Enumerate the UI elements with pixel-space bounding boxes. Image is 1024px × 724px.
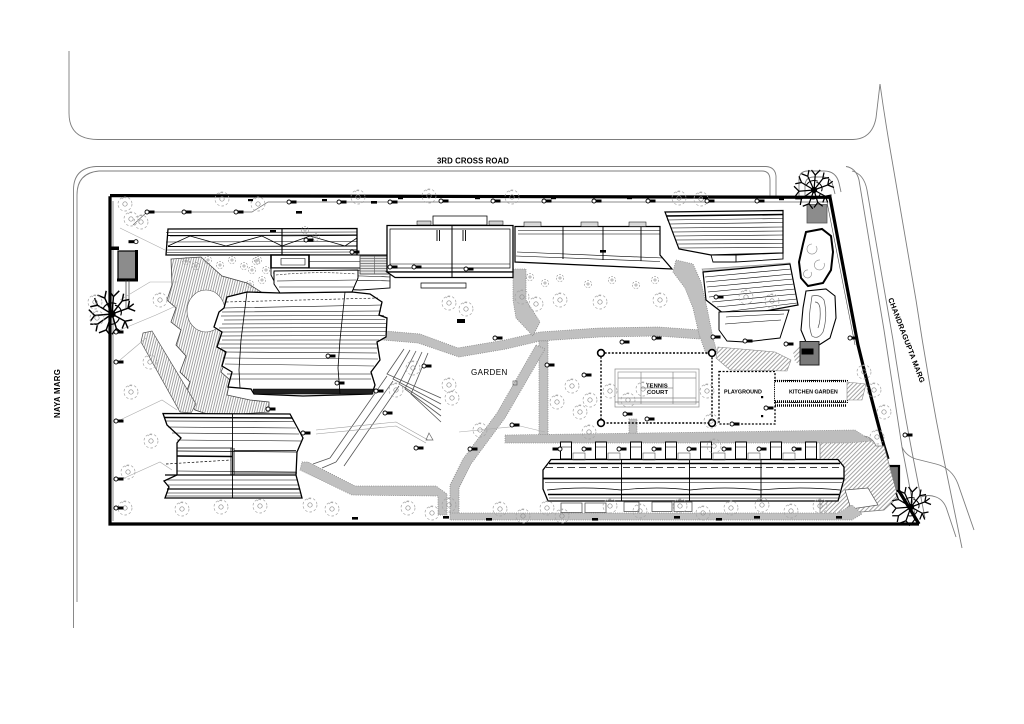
- svg-text:NAYA MARG: NAYA MARG: [53, 369, 62, 418]
- svg-text:3RD CROSS ROAD: 3RD CROSS ROAD: [437, 156, 509, 165]
- svg-text:GARDEN: GARDEN: [471, 368, 508, 377]
- svg-text:KITCHEN GARDEN: KITCHEN GARDEN: [789, 390, 838, 396]
- svg-text:PLAYGROUND: PLAYGROUND: [724, 389, 762, 395]
- svg-text:COURT: COURT: [647, 390, 668, 396]
